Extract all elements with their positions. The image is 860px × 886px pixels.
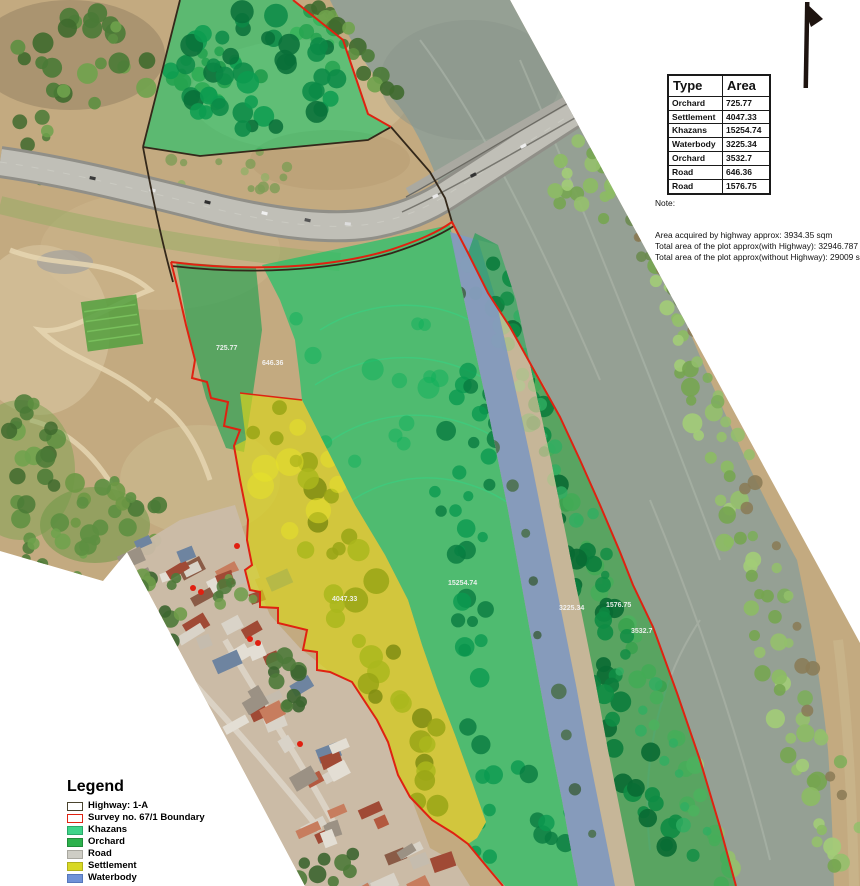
tree-blob	[12, 114, 27, 129]
tree-blob	[15, 450, 31, 466]
tree-blob	[389, 429, 403, 443]
tree-blob	[77, 63, 98, 84]
tree-blob	[645, 251, 654, 260]
tree-blob	[483, 804, 496, 817]
tree-blob	[289, 312, 302, 325]
table-cell: 725.77	[723, 96, 771, 110]
tree-blob	[176, 55, 195, 74]
tree-blob	[278, 853, 288, 863]
tree-blob	[481, 448, 497, 464]
tree-blob	[801, 787, 820, 806]
tree-blob	[347, 539, 369, 561]
tree-blob	[703, 373, 713, 383]
tree-blob	[675, 769, 684, 778]
rooftop	[135, 603, 157, 620]
tree-blob	[451, 613, 465, 627]
tree-blob	[287, 689, 301, 703]
tree-blob	[720, 416, 731, 427]
tree-blob	[215, 31, 229, 45]
tree-blob	[754, 665, 770, 681]
tree-blob	[574, 196, 589, 211]
rooftop-marker	[255, 640, 261, 646]
tree-blob	[744, 600, 759, 615]
tree-blob	[635, 725, 647, 737]
tree-blob	[109, 52, 130, 73]
tree-blob	[597, 624, 613, 640]
tree-blob	[347, 848, 360, 861]
tree-blob	[468, 437, 479, 448]
tree-blob	[386, 645, 401, 660]
tree-blob	[27, 538, 39, 550]
tree-blob	[418, 377, 440, 399]
map-area-label: 3532.7	[631, 628, 653, 635]
tree-blob	[28, 398, 40, 410]
rooftop-marker	[190, 585, 196, 591]
tree-blob	[672, 314, 685, 327]
tree-blob	[71, 518, 81, 528]
tree-blob	[194, 25, 212, 43]
tree-blob	[306, 101, 328, 123]
tree-blob	[457, 519, 476, 538]
tree-blob	[605, 189, 615, 199]
tree-blob	[51, 528, 61, 538]
legend-swatch-icon	[67, 814, 83, 823]
tree-blob	[281, 522, 299, 540]
tree-blob	[17, 495, 35, 513]
tree-blob	[419, 319, 431, 331]
tree-blob	[261, 31, 275, 45]
note-title: Note:	[655, 198, 860, 209]
tree-blob	[362, 358, 384, 380]
tree-blob	[419, 736, 436, 753]
tree-blob	[309, 865, 327, 883]
tree-blob	[814, 731, 828, 745]
table-row: Waterbody3225.34	[668, 138, 770, 152]
tree-blob	[627, 779, 645, 797]
tree-blob	[463, 491, 473, 501]
tree-blob	[165, 154, 177, 166]
area-table-header: TypeArea	[668, 75, 770, 96]
tree-blob	[435, 505, 446, 516]
tree-blob	[226, 578, 236, 588]
tree-blob	[248, 185, 255, 192]
tree-blob	[673, 294, 686, 307]
tree-blob	[598, 213, 609, 224]
tree-blob	[538, 815, 554, 831]
tree-blob	[784, 638, 794, 648]
tree-blob	[746, 570, 758, 582]
tree-blob	[551, 684, 567, 700]
tree-blob	[772, 669, 787, 684]
tree-blob	[110, 21, 121, 32]
tree-blob	[310, 37, 328, 55]
tree-blob	[327, 69, 346, 88]
tree-blob	[749, 630, 760, 641]
tree-blob	[361, 49, 374, 62]
tree-blob	[298, 468, 319, 489]
tree-blob	[180, 159, 187, 166]
tree-blob	[596, 657, 611, 672]
garden-plot	[81, 294, 143, 351]
tree-blob	[475, 634, 488, 647]
tree-blob	[137, 601, 154, 618]
tree-blob	[159, 605, 171, 617]
tree-blob	[475, 769, 490, 784]
tree-blob	[500, 292, 514, 306]
tree-blob	[806, 661, 821, 676]
tree-blob	[506, 479, 518, 491]
tree-blob	[399, 416, 415, 432]
table-row: Orchard725.77	[668, 96, 770, 110]
tree-blob	[167, 580, 177, 590]
tree-blob	[687, 849, 700, 862]
tree-blob	[148, 500, 161, 513]
tree-blob	[297, 541, 314, 558]
map-area-label: 4047.33	[332, 596, 357, 603]
tree-blob	[686, 395, 696, 405]
tree-blob	[561, 730, 572, 741]
tree-blob	[1, 423, 17, 439]
map-area-label: 3225.34	[559, 605, 584, 612]
tree-blob	[837, 790, 847, 800]
tree-blob	[415, 770, 436, 791]
tree-blob	[639, 809, 657, 827]
tree-blob	[483, 479, 495, 491]
tree-blob	[38, 571, 54, 587]
tree-blob	[620, 649, 631, 660]
tree-blob	[470, 668, 490, 688]
tree-blob	[427, 795, 449, 817]
rooftop-marker	[297, 741, 303, 747]
vehicle	[345, 222, 351, 226]
legend-swatch-icon	[67, 802, 83, 811]
tree-blob	[269, 673, 285, 689]
tree-blob	[785, 733, 796, 744]
tree-blob	[583, 178, 598, 193]
tree-blob	[258, 182, 269, 193]
tree-blob	[108, 34, 118, 44]
tree-blob	[449, 390, 465, 406]
tree-blob	[222, 48, 239, 65]
legend-item-label: Road	[88, 849, 112, 859]
tree-blob	[352, 634, 366, 648]
north-arrow-icon	[804, 2, 824, 88]
tree-blob	[529, 576, 538, 585]
legend: Legend Highway: 1-ASurvey no. 67/1 Bound…	[67, 779, 205, 886]
tree-blob	[165, 634, 180, 649]
tree-blob	[616, 667, 624, 675]
tree-blob	[553, 197, 566, 210]
tree-blob	[452, 465, 466, 479]
tree-blob	[586, 556, 602, 572]
tree-blob	[282, 657, 296, 671]
tree-blob	[77, 497, 89, 509]
tree-blob	[650, 275, 662, 287]
tree-blob	[282, 162, 292, 172]
tree-blob	[715, 495, 726, 506]
table-cell: 15254.74	[723, 124, 771, 138]
tree-blob	[734, 532, 747, 545]
tree-blob	[768, 610, 782, 624]
table-cell: Khazans	[668, 124, 723, 138]
tree-blob	[304, 347, 321, 364]
tree-blob	[700, 306, 709, 315]
tree-blob	[138, 604, 157, 623]
tree-blob	[459, 718, 476, 735]
tree-blob	[638, 706, 647, 715]
legend-item-label: Highway: 1-A	[88, 801, 148, 811]
tree-blob	[705, 452, 717, 464]
tree-blob	[673, 335, 684, 346]
tree-blob	[607, 173, 621, 187]
tree-blob	[719, 506, 736, 523]
tree-blob	[65, 473, 85, 493]
tree-blob	[772, 541, 781, 550]
tree-blob	[48, 479, 61, 492]
note-line: Total area of the plot approx(without Hi…	[655, 252, 860, 263]
tree-blob	[586, 147, 598, 159]
tree-blob	[348, 455, 361, 468]
tree-blob	[94, 479, 111, 496]
tree-blob	[10, 40, 25, 55]
tree-blob	[125, 492, 136, 503]
map-area-label: 646.36	[262, 360, 284, 367]
tree-blob	[724, 537, 735, 548]
tree-blob	[545, 832, 558, 845]
tree-blob	[471, 735, 490, 754]
table-cell: Settlement	[668, 110, 723, 124]
tree-blob	[569, 783, 581, 795]
tree-blob	[274, 50, 294, 70]
tree-blob	[828, 859, 842, 873]
note-line: Area acquired by highway approx: 3934.35…	[655, 230, 860, 241]
table-cell: 3225.34	[723, 138, 771, 152]
tree-blob	[234, 587, 248, 601]
map-area-label: 725.77	[216, 345, 238, 352]
tree-blob	[664, 282, 674, 292]
tree-blob	[323, 91, 339, 107]
tree-blob	[649, 677, 663, 691]
legend-item-label: Survey no. 67/1 Boundary	[88, 813, 205, 823]
tree-blob	[748, 531, 758, 541]
tree-blob	[237, 71, 260, 94]
tree-blob	[796, 724, 814, 742]
tree-blob	[739, 483, 751, 495]
survey-map-page: 725.77646.3615254.744047.333225.341576.7…	[0, 0, 860, 886]
tree-blob	[680, 802, 689, 811]
tree-blob	[368, 689, 382, 703]
tree-blob	[429, 486, 441, 498]
tree-blob	[36, 448, 56, 468]
legend-title: Legend	[67, 779, 205, 795]
tree-blob	[690, 315, 700, 325]
tree-blob	[711, 395, 724, 408]
tree-blob	[214, 598, 226, 610]
note: Note: Area acquired by highway approx: 3…	[655, 177, 860, 273]
tree-blob	[272, 400, 287, 415]
tree-blob	[246, 426, 260, 440]
tree-blob	[363, 568, 389, 594]
tree-blob	[797, 690, 813, 706]
tree-blob	[389, 85, 404, 100]
tree-blob	[276, 448, 304, 476]
tree-blob	[635, 233, 643, 241]
tree-blob	[22, 554, 31, 563]
legend-item: Settlement	[67, 862, 205, 870]
tree-blob	[211, 98, 229, 116]
tree-blob	[694, 307, 709, 322]
tree-blob	[427, 718, 445, 736]
tree-blob	[390, 690, 409, 709]
tree-blob	[595, 577, 611, 593]
legend-item: Orchard	[67, 838, 205, 846]
legend-item-label: Khazans	[88, 825, 127, 835]
tree-blob	[241, 167, 249, 175]
tree-blob	[472, 406, 488, 422]
tree-blob	[669, 738, 678, 747]
tree-blob	[245, 159, 255, 169]
tree-blob	[66, 572, 74, 580]
tree-blob	[659, 756, 669, 766]
tree-blob	[641, 743, 660, 762]
legend-swatch-icon	[67, 850, 83, 859]
tree-blob	[772, 563, 782, 573]
tree-blob	[35, 561, 45, 571]
tree-blob	[569, 513, 584, 528]
legend-swatch-icon	[67, 874, 83, 883]
tree-blob	[215, 158, 222, 165]
tree-blob	[486, 257, 500, 271]
legend-item: Khazans	[67, 826, 205, 834]
tree-blob	[554, 154, 568, 168]
tree-blob	[41, 125, 54, 138]
rooftop-marker	[247, 636, 253, 642]
tree-blob	[249, 595, 258, 604]
table-header-cell: Type	[668, 75, 723, 96]
tree-blob	[533, 631, 541, 639]
tree-blob	[302, 82, 322, 102]
tree-blob	[588, 830, 596, 838]
tree-blob	[667, 283, 680, 296]
legend-item-label: Orchard	[88, 837, 125, 847]
tree-blob	[605, 712, 620, 727]
table-cell: 3532.7	[723, 152, 771, 166]
tree-blob	[562, 168, 573, 179]
tree-blob	[280, 174, 288, 182]
tree-blob	[299, 857, 310, 868]
table-cell: Orchard	[668, 152, 723, 166]
tree-blob	[88, 97, 101, 110]
tree-blob	[139, 52, 156, 69]
legend-item: Waterbody	[67, 874, 205, 882]
tree-blob	[174, 607, 187, 620]
tree-blob	[436, 421, 456, 441]
tree-blob	[37, 558, 49, 570]
tree-blob	[784, 591, 794, 601]
tree-blob	[131, 579, 148, 596]
tree-blob	[136, 78, 156, 98]
tree-blob	[245, 95, 258, 108]
note-line: Total area of the plot approx(with Highw…	[655, 241, 860, 252]
tree-blob	[793, 622, 802, 631]
tree-blob	[478, 532, 488, 542]
table-row: Khazans15254.74	[668, 124, 770, 138]
tree-blob	[269, 846, 285, 862]
tree-blob	[834, 755, 847, 768]
tree-blob	[674, 285, 682, 293]
tree-blob	[483, 849, 497, 863]
tree-blob	[119, 518, 137, 536]
tree-blob	[774, 684, 786, 696]
tree-blob	[57, 84, 70, 97]
tree-blob	[754, 647, 765, 658]
tree-blob	[687, 325, 699, 337]
tree-blob	[817, 825, 827, 835]
tree-blob	[693, 430, 704, 441]
tree-blob	[648, 796, 664, 812]
legend-item: Survey no. 67/1 Boundary	[67, 814, 205, 822]
tree-blob	[825, 771, 835, 781]
table-cell: Waterbody	[668, 138, 723, 152]
tree-blob	[231, 0, 254, 23]
tree-blob	[74, 541, 89, 556]
tree-blob	[264, 4, 288, 28]
tree-blob	[547, 183, 562, 198]
tree-blob	[659, 300, 674, 315]
tree-blob	[449, 504, 462, 517]
legend-item: Highway: 1-A	[67, 802, 205, 810]
legend-swatch-icon	[67, 838, 83, 847]
tree-blob	[455, 637, 475, 657]
tree-blob	[657, 836, 677, 856]
tree-blob	[741, 502, 754, 515]
legend-swatch-icon	[67, 826, 83, 835]
note-lines: Area acquired by highway approx: 3934.35…	[655, 230, 860, 262]
tree-blob	[467, 616, 478, 627]
tree-blob	[44, 422, 58, 436]
tree-blob	[600, 548, 613, 561]
rooftop-marker	[198, 589, 204, 595]
table-cell: Orchard	[668, 96, 723, 110]
tree-blob	[82, 19, 102, 39]
tree-blob	[587, 508, 598, 519]
tree-blob	[676, 818, 691, 833]
tree-blob	[33, 32, 54, 53]
tree-blob	[571, 134, 585, 148]
tree-blob	[92, 520, 108, 536]
tree-blob	[453, 593, 471, 611]
tree-blob	[134, 569, 150, 585]
tree-blob	[190, 103, 207, 120]
tree-blob	[270, 183, 280, 193]
tree-blob	[754, 589, 764, 599]
tree-blob	[625, 214, 637, 226]
legend-item: Road	[67, 850, 205, 858]
tree-blob	[801, 705, 813, 717]
table-row: Orchard3532.7	[668, 152, 770, 166]
tree-blob	[520, 765, 538, 783]
tree-blob	[703, 827, 712, 836]
tree-blob	[270, 431, 284, 445]
rooftop-marker	[234, 543, 240, 549]
legend-items: Highway: 1-ASurvey no. 67/1 BoundaryKhaz…	[67, 802, 205, 882]
tree-blob	[252, 455, 279, 482]
tree-blob	[521, 529, 530, 538]
tree-blob	[548, 439, 562, 453]
tree-blob	[318, 853, 331, 866]
tree-blob	[269, 119, 284, 134]
tree-blob	[72, 571, 82, 581]
